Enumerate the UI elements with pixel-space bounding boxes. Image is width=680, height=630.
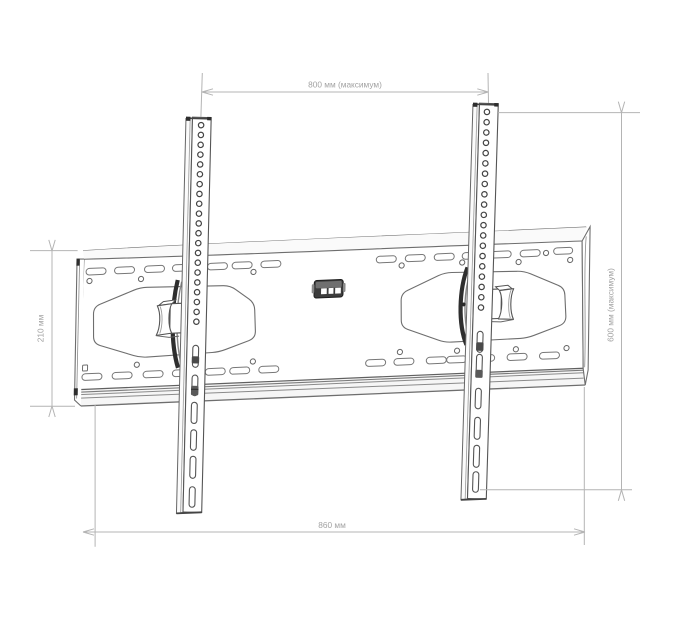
svg-text:800 мм (максимум): 800 мм (максимум) [308, 80, 382, 90]
svg-text:860 мм: 860 мм [318, 520, 346, 530]
svg-text:210 мм: 210 мм [36, 314, 46, 342]
svg-text:600 мм (максимум): 600 мм (максимум) [606, 268, 616, 342]
